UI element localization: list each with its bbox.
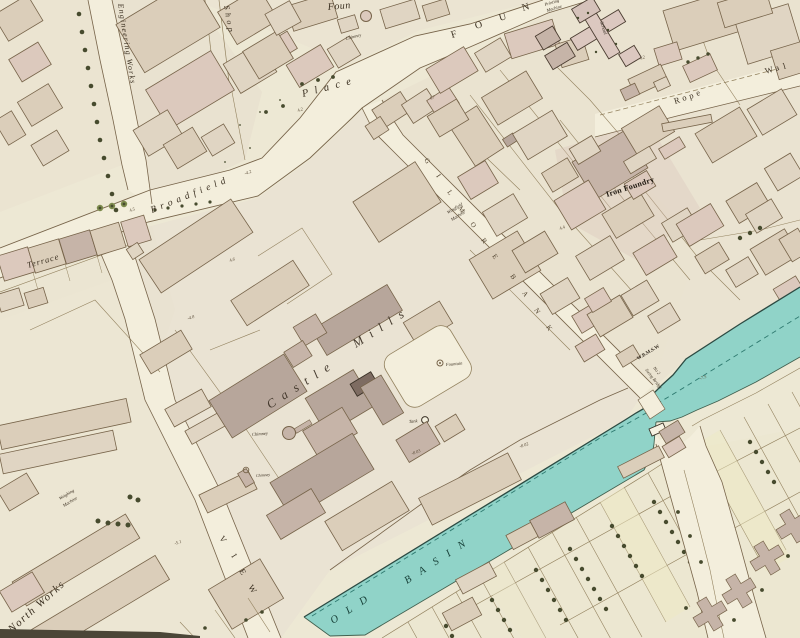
svg-text:Tank: Tank	[409, 418, 419, 424]
svg-text:Foun: Foun	[326, 0, 351, 13]
